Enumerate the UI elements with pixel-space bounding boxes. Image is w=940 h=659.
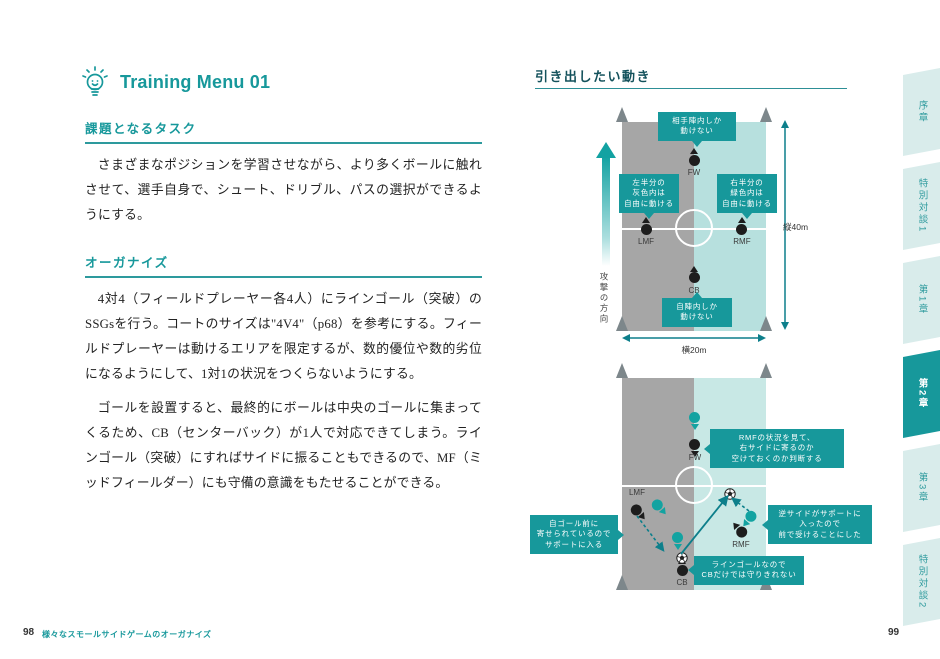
- sidebar-tab-3[interactable]: 第1章: [903, 256, 940, 344]
- book-spread: Training Menu 01 課題となるタスク さまざまなポジションを学習さ…: [0, 0, 940, 659]
- sidebar-tab-2[interactable]: 特別対談1: [903, 162, 940, 250]
- page-number-left: 98: [23, 627, 34, 638]
- sidebar-tab-label: 特別対談2: [915, 554, 929, 610]
- corner-flag-icon: [616, 363, 628, 378]
- corner-flag-icon: [760, 363, 772, 378]
- callout-own-half-only: 自陣内しか 動けない: [662, 298, 732, 327]
- center-circle: [675, 209, 713, 247]
- body-paragraph: ゴールを設置すると、最終的にボールは中央のゴールに集まってくるため、CB（センタ…: [85, 396, 482, 496]
- attack-direction-arrow: [596, 142, 616, 266]
- sidebar-tab-1[interactable]: 序章: [903, 68, 940, 156]
- section-heading-task: 課題となるタスク: [85, 118, 482, 137]
- corner-flag-icon: [616, 107, 628, 122]
- page-number-right: 99: [888, 627, 899, 638]
- sidebar-tab-label: 第3章: [915, 472, 929, 504]
- movement-arrow: [637, 516, 663, 550]
- horizontal-dimension-label: 横20m: [666, 344, 722, 356]
- corner-flag-icon: [760, 107, 772, 122]
- callout-lmf-support: 自ゴール前に 寄せられているので サポートに入る: [530, 515, 618, 554]
- corner-flag-icon: [616, 316, 628, 331]
- sidebar-tab-label: 特別対談1: [915, 178, 929, 234]
- sidebar-tab-4[interactable]: 第2章: [903, 350, 940, 438]
- pass-arrow: [681, 497, 727, 554]
- heading-rule: [85, 142, 482, 144]
- callout-fw-judgement: RMFの状況を見て、 右サイドに寄るのか 空けておくのか判断する: [710, 429, 844, 468]
- player-label-rmf: RMF: [722, 237, 762, 246]
- callout-left-gray-free: 左半分の 灰色内は 自由に動ける: [619, 174, 679, 213]
- left-column: 課題となるタスク さまざまなポジションを学習させながら、より多くボールに触れさせ…: [85, 118, 482, 496]
- corner-flag-icon: [760, 316, 772, 331]
- player-marker-fw: [687, 147, 701, 167]
- sidebar-tab-label: 序章: [915, 100, 929, 124]
- movement-arrow: [733, 499, 749, 511]
- body-paragraph: 4対4（フィールドプレーヤー各4人）にラインゴール（突破）のSSGsを行う。コー…: [85, 287, 482, 387]
- section-task: 課題となるタスク さまざまなポジションを学習させながら、より多くボールに触れさせ…: [85, 118, 482, 228]
- section-heading-organize: オーガナイズ: [85, 252, 482, 271]
- callout-rmf-receive: 逆サイドがサポートに 入ったので 前で受けることにした: [768, 505, 872, 544]
- page-title: Training Menu 01: [120, 72, 270, 93]
- section-organize: オーガナイズ 4対4（フィールドプレーヤー各4人）にラインゴール（突破）のSSG…: [85, 252, 482, 496]
- sidebar-tab-label: 第2章: [915, 378, 929, 410]
- chapter-tab-sidebar: 序章特別対談1第1章第2章第3章特別対談2: [903, 0, 940, 659]
- footer-caption: 様々なスモールサイドゲームのオーガナイズ: [42, 629, 212, 640]
- callout-right-green-free: 右半分の 緑色内は 自由に動ける: [717, 174, 777, 213]
- right-page-heading: 引き出したい動き: [535, 66, 651, 85]
- player-label-fw: FW: [674, 168, 714, 177]
- sidebar-tab-6[interactable]: 特別対談2: [903, 538, 940, 626]
- callout-opponent-half-only: 相手陣内しか 動けない: [658, 112, 736, 141]
- sidebar-tab-label: 第1章: [915, 284, 929, 316]
- body-paragraph: さまざまなポジションを学習させながら、より多くボールに触れさせて、選手自身で、シ…: [85, 153, 482, 228]
- heading-rule: [85, 276, 482, 278]
- attack-direction-label: 攻撃の方向: [598, 272, 610, 325]
- vertical-dimension-label: 縦40m: [783, 221, 808, 233]
- heading-rule: [535, 88, 847, 89]
- lightbulb-icon: [80, 62, 110, 102]
- sidebar-tab-5[interactable]: 第3章: [903, 444, 940, 532]
- player-marker-cb: [687, 265, 701, 285]
- horizontal-dimension-arrow: [622, 332, 766, 344]
- player-label-lmf: LMF: [626, 237, 666, 246]
- callout-cb-line-goal: ラインゴールなので CBだけでは守りきれない: [694, 556, 804, 585]
- training-menu-header: Training Menu 01: [80, 62, 270, 102]
